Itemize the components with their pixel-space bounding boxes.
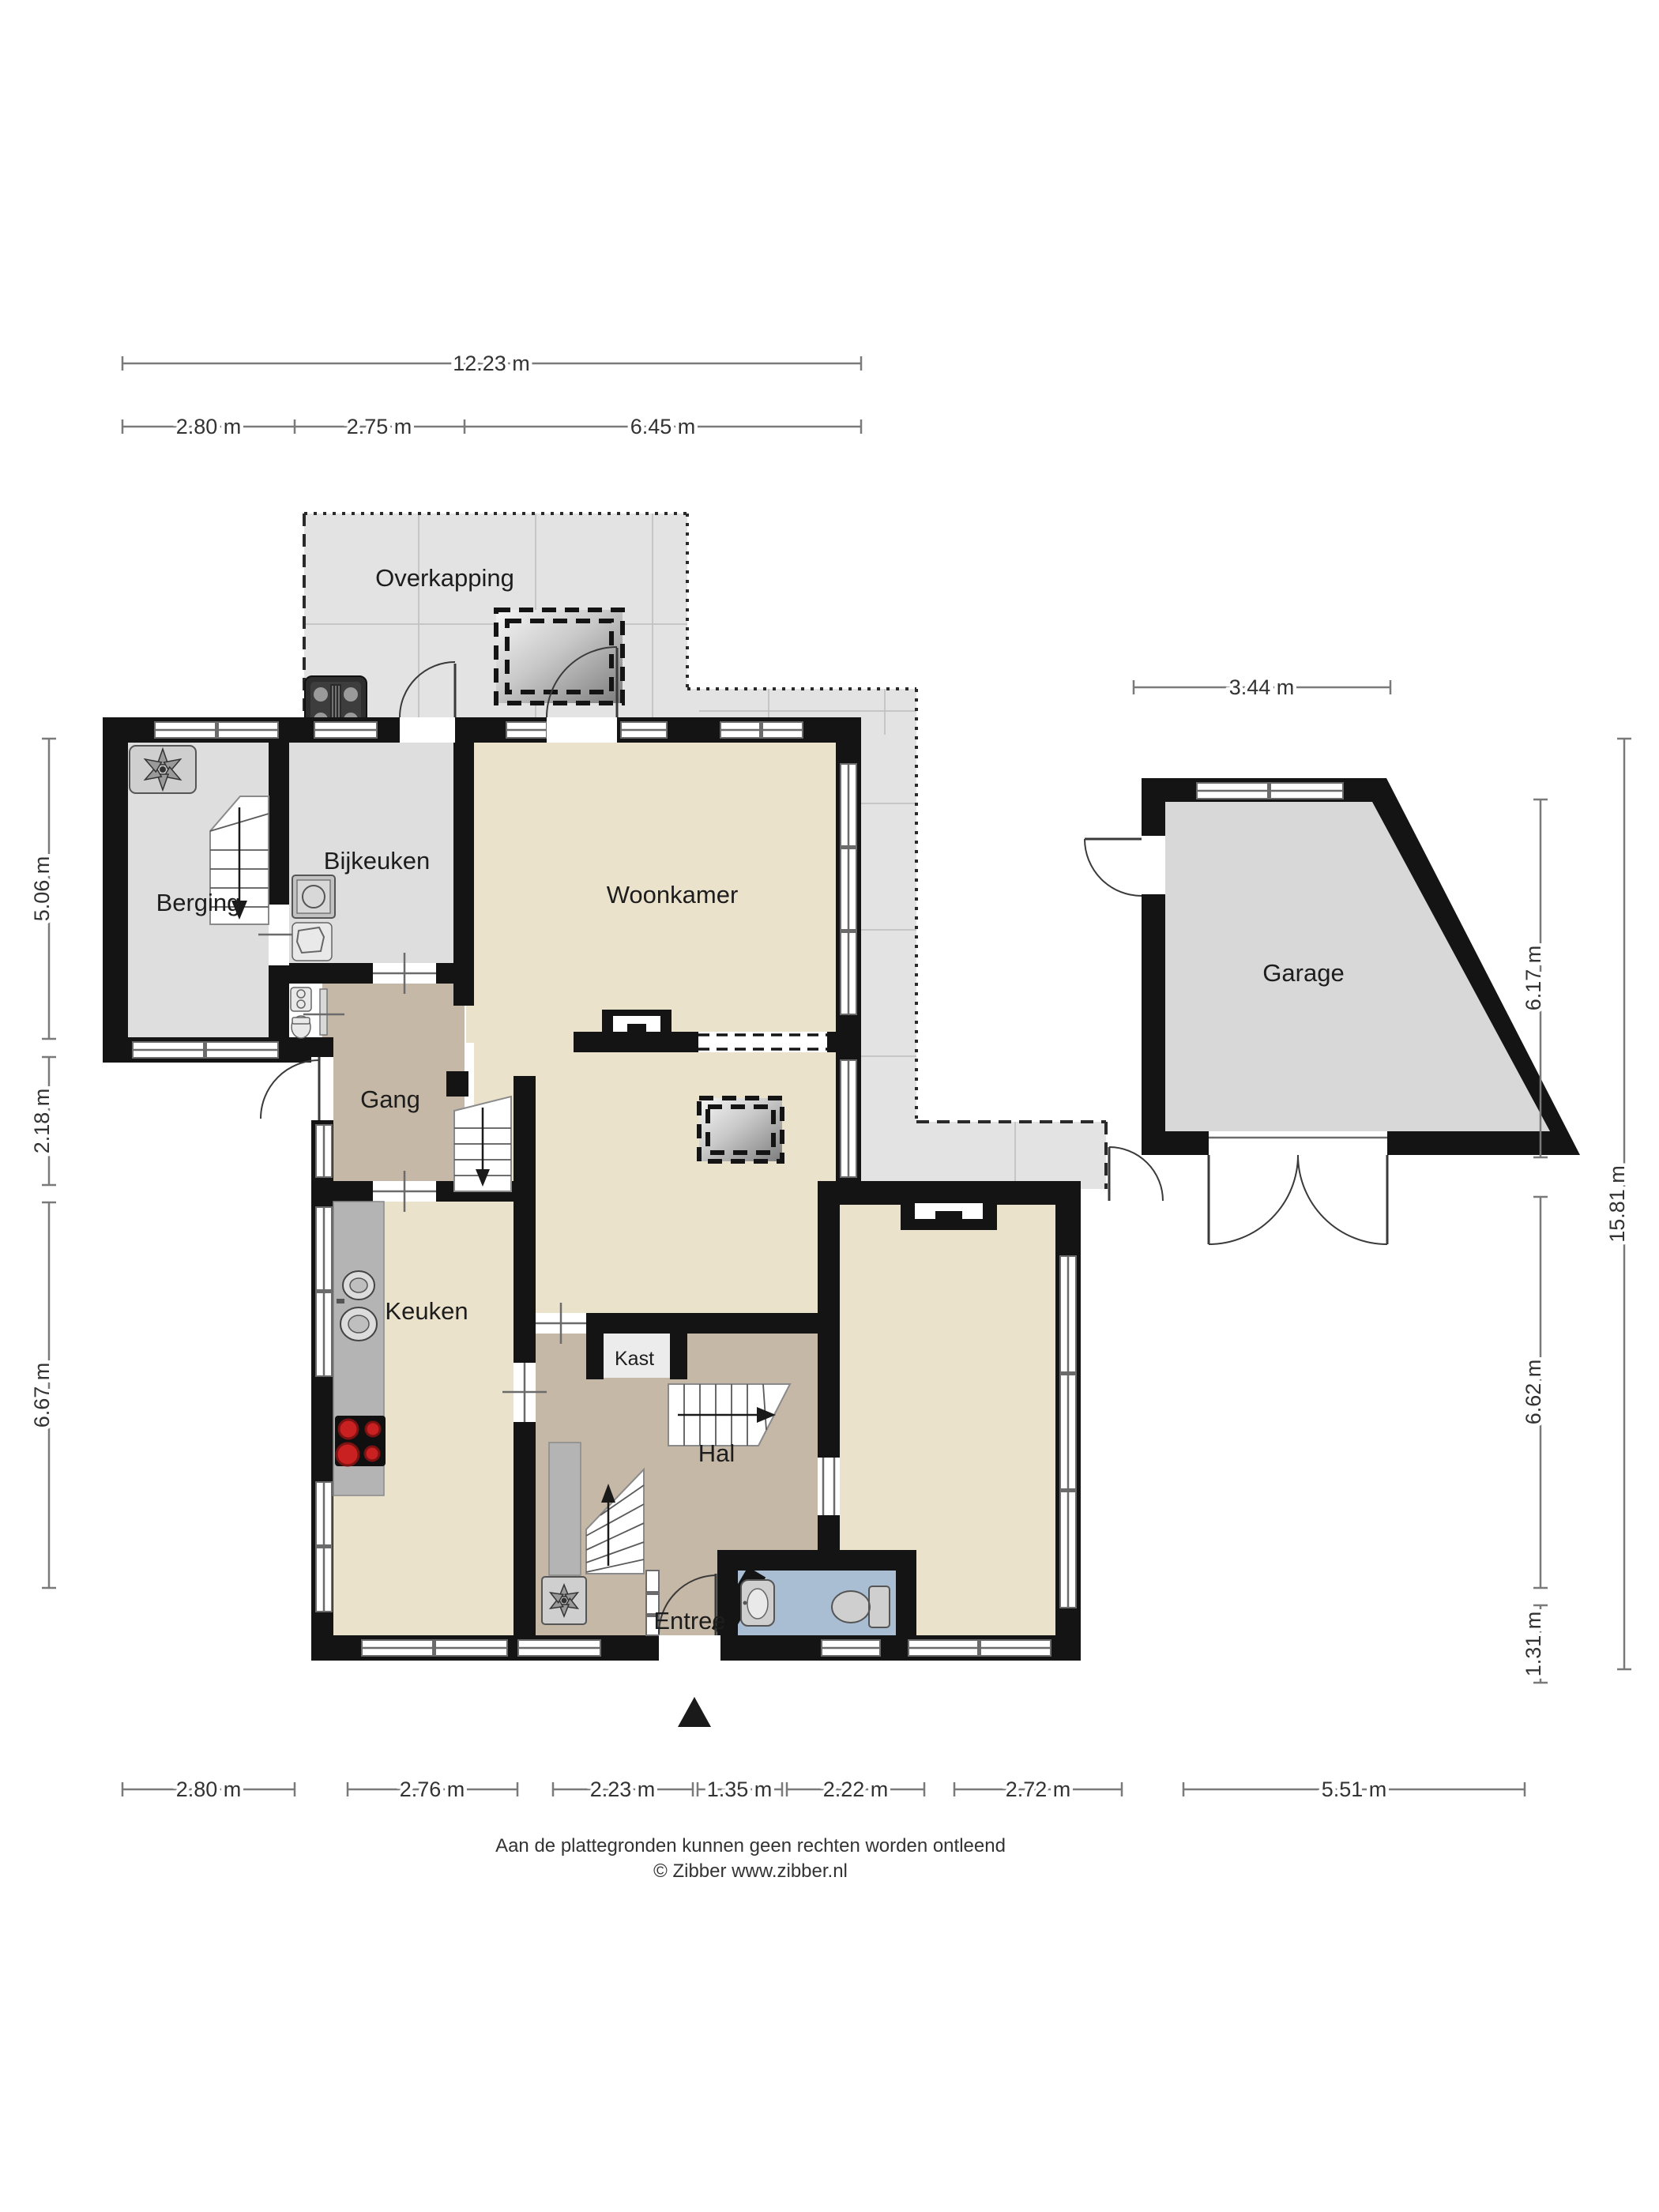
washer-icon [292,875,335,918]
svg-text:2.23 m: 2.23 m [590,1777,656,1801]
woonkamer-label: Woonkamer [607,881,739,908]
window [841,764,856,1014]
keuken-label: Keuken [385,1297,468,1325]
svg-text:2.76 m: 2.76 m [400,1777,465,1801]
fireplace-woonkamer-icon [602,1010,671,1052]
hob-icon [335,1416,386,1466]
dim-top-segments: 2.80 m 2.75 m 6.45 m [122,415,861,438]
stairs-gang-icon [454,1097,511,1191]
floorplan-canvas: Overkapping [0,0,1659,2212]
kast-label: Kast [615,1348,654,1370]
gate-door [1109,1147,1163,1201]
dim-top-total: 12.23 m [122,352,861,375]
footer-disclaimer: Aan de plattegronden kunnen geen rechten… [495,1835,1006,1856]
svg-text:1.35 m: 1.35 m [707,1777,773,1801]
gang-label: Gang [360,1085,420,1113]
footer: Aan de plattegronden kunnen geen rechten… [495,1835,1006,1882]
garage-building: Garage [1085,778,1580,1244]
window [841,1060,856,1177]
svg-text:2.72 m: 2.72 m [1006,1777,1071,1801]
window [314,722,377,738]
window [621,722,667,738]
window [506,722,547,738]
dim-right-total: 15.81 m [1605,739,1631,1669]
window [133,1042,278,1058]
dim-right-inner: 6.17 m 6.62 m 1.31 m [1522,799,1548,1683]
svg-text:6.17 m: 6.17 m [1522,946,1545,1011]
dim-left: 5.06 m 2.18 m 6.67 m [30,739,56,1588]
dim-garage: 3.44 m [1134,675,1390,699]
window [1060,1256,1076,1608]
ventilation-fan-small-icon [542,1577,586,1624]
entrance-marker-icon [678,1697,711,1727]
door [818,1458,840,1515]
svg-text:6.67 m: 6.67 m [30,1363,54,1428]
door [261,1057,333,1120]
window [316,1482,332,1612]
svg-text:15.81 m: 15.81 m [1605,1165,1629,1243]
svg-text:2.18 m: 2.18 m [30,1089,54,1154]
footer-copyright: © Zibber www.zibber.nl [653,1860,848,1882]
svg-text:2.22 m: 2.22 m [823,1777,889,1801]
open-passage [698,1032,827,1052]
berging-label: Berging [156,889,241,916]
kitchen-counter [333,1202,386,1495]
svg-text:2.80 m: 2.80 m [176,415,242,438]
dim-bottom: 2.80 m 2.76 m 2.23 m 1.35 m 2.22 m 2.72 … [122,1777,1525,1801]
washbasin-icon [741,1580,774,1626]
svg-text:6.62 m: 6.62 m [1522,1360,1545,1425]
kitchen-cabinet-strip [542,1443,586,1624]
svg-text:2.80 m: 2.80 m [176,1777,242,1801]
window [822,1640,880,1656]
window [720,722,803,738]
svg-text:12.23 m: 12.23 m [453,352,530,375]
boiler-icon [292,923,332,961]
window [1197,783,1343,799]
window [316,1125,332,1177]
skylight-icon [496,610,623,703]
bijkeuken-label: Bijkeuken [324,847,430,875]
window [518,1640,600,1656]
skylight-dining-icon [699,1098,782,1161]
door [1085,836,1165,896]
svg-text:6.45 m: 6.45 m [630,415,696,438]
fireplace-seroom-icon [901,1181,997,1230]
window [362,1640,507,1656]
window [155,722,278,738]
svg-text:3.44 m: 3.44 m [1229,675,1295,699]
window [908,1640,1051,1656]
floorplan-page: Overkapping [0,0,1659,2212]
window [316,1207,332,1376]
svg-text:2.75 m: 2.75 m [347,415,412,438]
entree-label: Entree [653,1607,725,1635]
svg-text:5.51 m: 5.51 m [1322,1777,1387,1801]
garage-label: Garage [1262,959,1344,987]
garage-double-doors [1209,1131,1387,1244]
overkapping-label: Overkapping [375,564,514,592]
svg-text:1.31 m: 1.31 m [1522,1612,1545,1677]
svg-text:5.06 m: 5.06 m [30,856,54,922]
ventilation-fan-icon [130,746,196,793]
hal-label: Hal [698,1439,735,1467]
